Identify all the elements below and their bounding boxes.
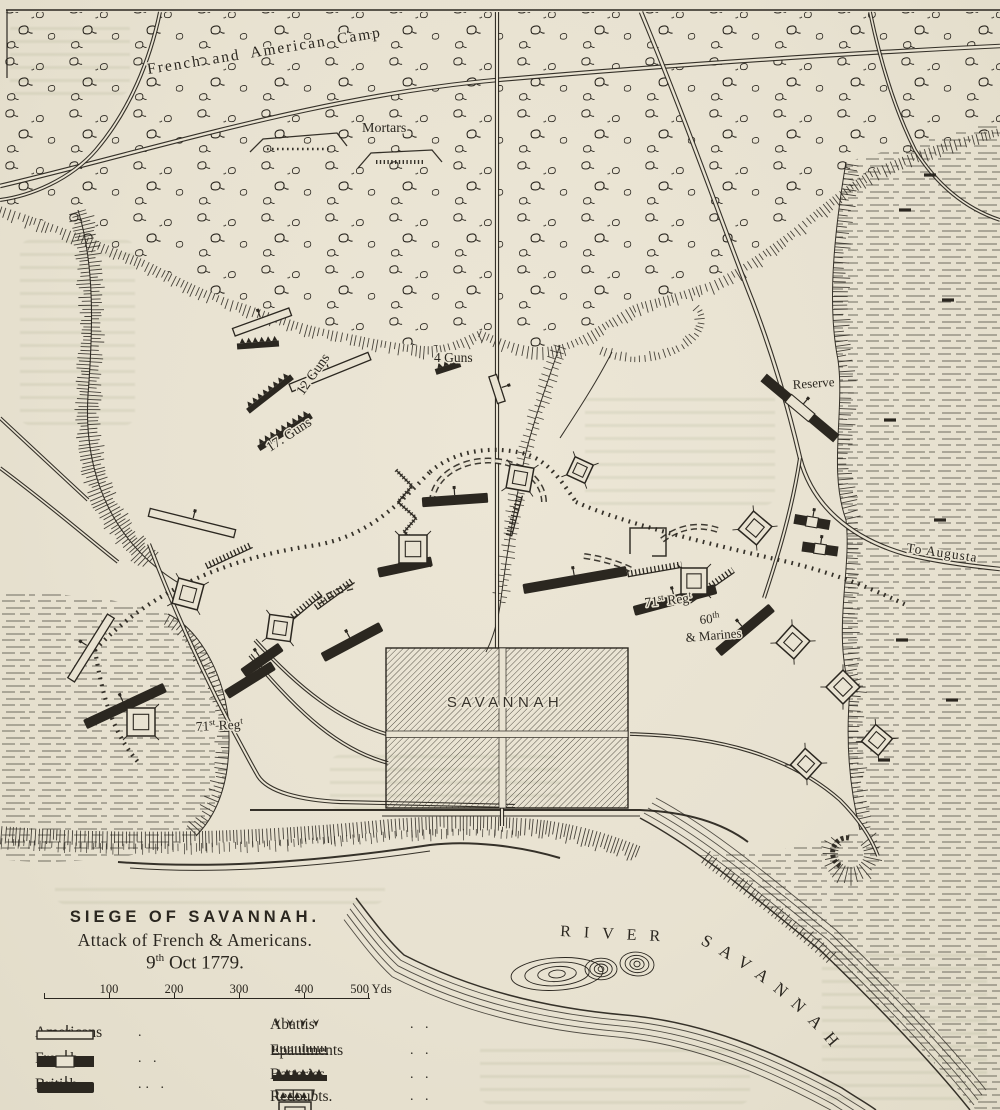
leader-dots: . .	[410, 1017, 440, 1033]
regt-71-right-label: 71st Regt	[644, 589, 693, 610]
leader-dots: .	[138, 1025, 168, 1041]
legend-row-americans: Americans .	[35, 1024, 230, 1042]
leader-dots: . .	[138, 1051, 168, 1067]
savannah-city-label: SAVANNAH	[447, 694, 563, 711]
legend-row-redoubts: Redoubts. . .	[270, 1088, 502, 1106]
map-subtitle: Attack of French & Americans.	[30, 930, 360, 951]
mortars-label: Mortars	[362, 121, 406, 136]
regt-71-left-label: 71st Regt	[195, 716, 243, 734]
scale-line	[44, 998, 370, 1007]
leader-dots: .. .	[138, 1077, 168, 1093]
regt-60-label: 60th	[699, 609, 721, 627]
legend-row-abattis: Abattis . .	[270, 1016, 502, 1034]
scale-bar: 100 200 300 400 500 Yds	[44, 982, 370, 1008]
legend-row-french: French. . .	[35, 1050, 230, 1068]
title-block: SIEGE OF SAVANNAH. Attack of French & Am…	[30, 908, 360, 974]
leader-dots: . .	[410, 1043, 440, 1059]
legend-row-british: British .. .	[35, 1076, 230, 1094]
city-outline	[386, 648, 628, 808]
river-label-word1: RIVER	[560, 923, 674, 946]
map-page: French and American Camp Mortars 12 Guns…	[0, 0, 1000, 1110]
leader-dots: . .	[410, 1089, 440, 1105]
reserve-label: Reserve	[792, 374, 835, 392]
map-title: SIEGE OF SAVANNAH.	[30, 908, 360, 927]
legend-row-batteries: Batteries . .	[270, 1066, 502, 1084]
scale-labels: 100 200 300 400 500 Yds	[44, 982, 370, 995]
leader-dots: . .	[410, 1067, 440, 1083]
scale-label-500: 500 Yds	[350, 982, 392, 997]
savannah-city-block	[386, 648, 628, 808]
map-date: 9th Oct 1779.	[30, 952, 360, 974]
city-street-horizontal	[386, 731, 628, 738]
legend-row-epaulments: Epaulments . .	[270, 1042, 502, 1060]
guns-4-label: 4 Guns	[434, 350, 473, 365]
city-street-vertical	[499, 648, 506, 808]
